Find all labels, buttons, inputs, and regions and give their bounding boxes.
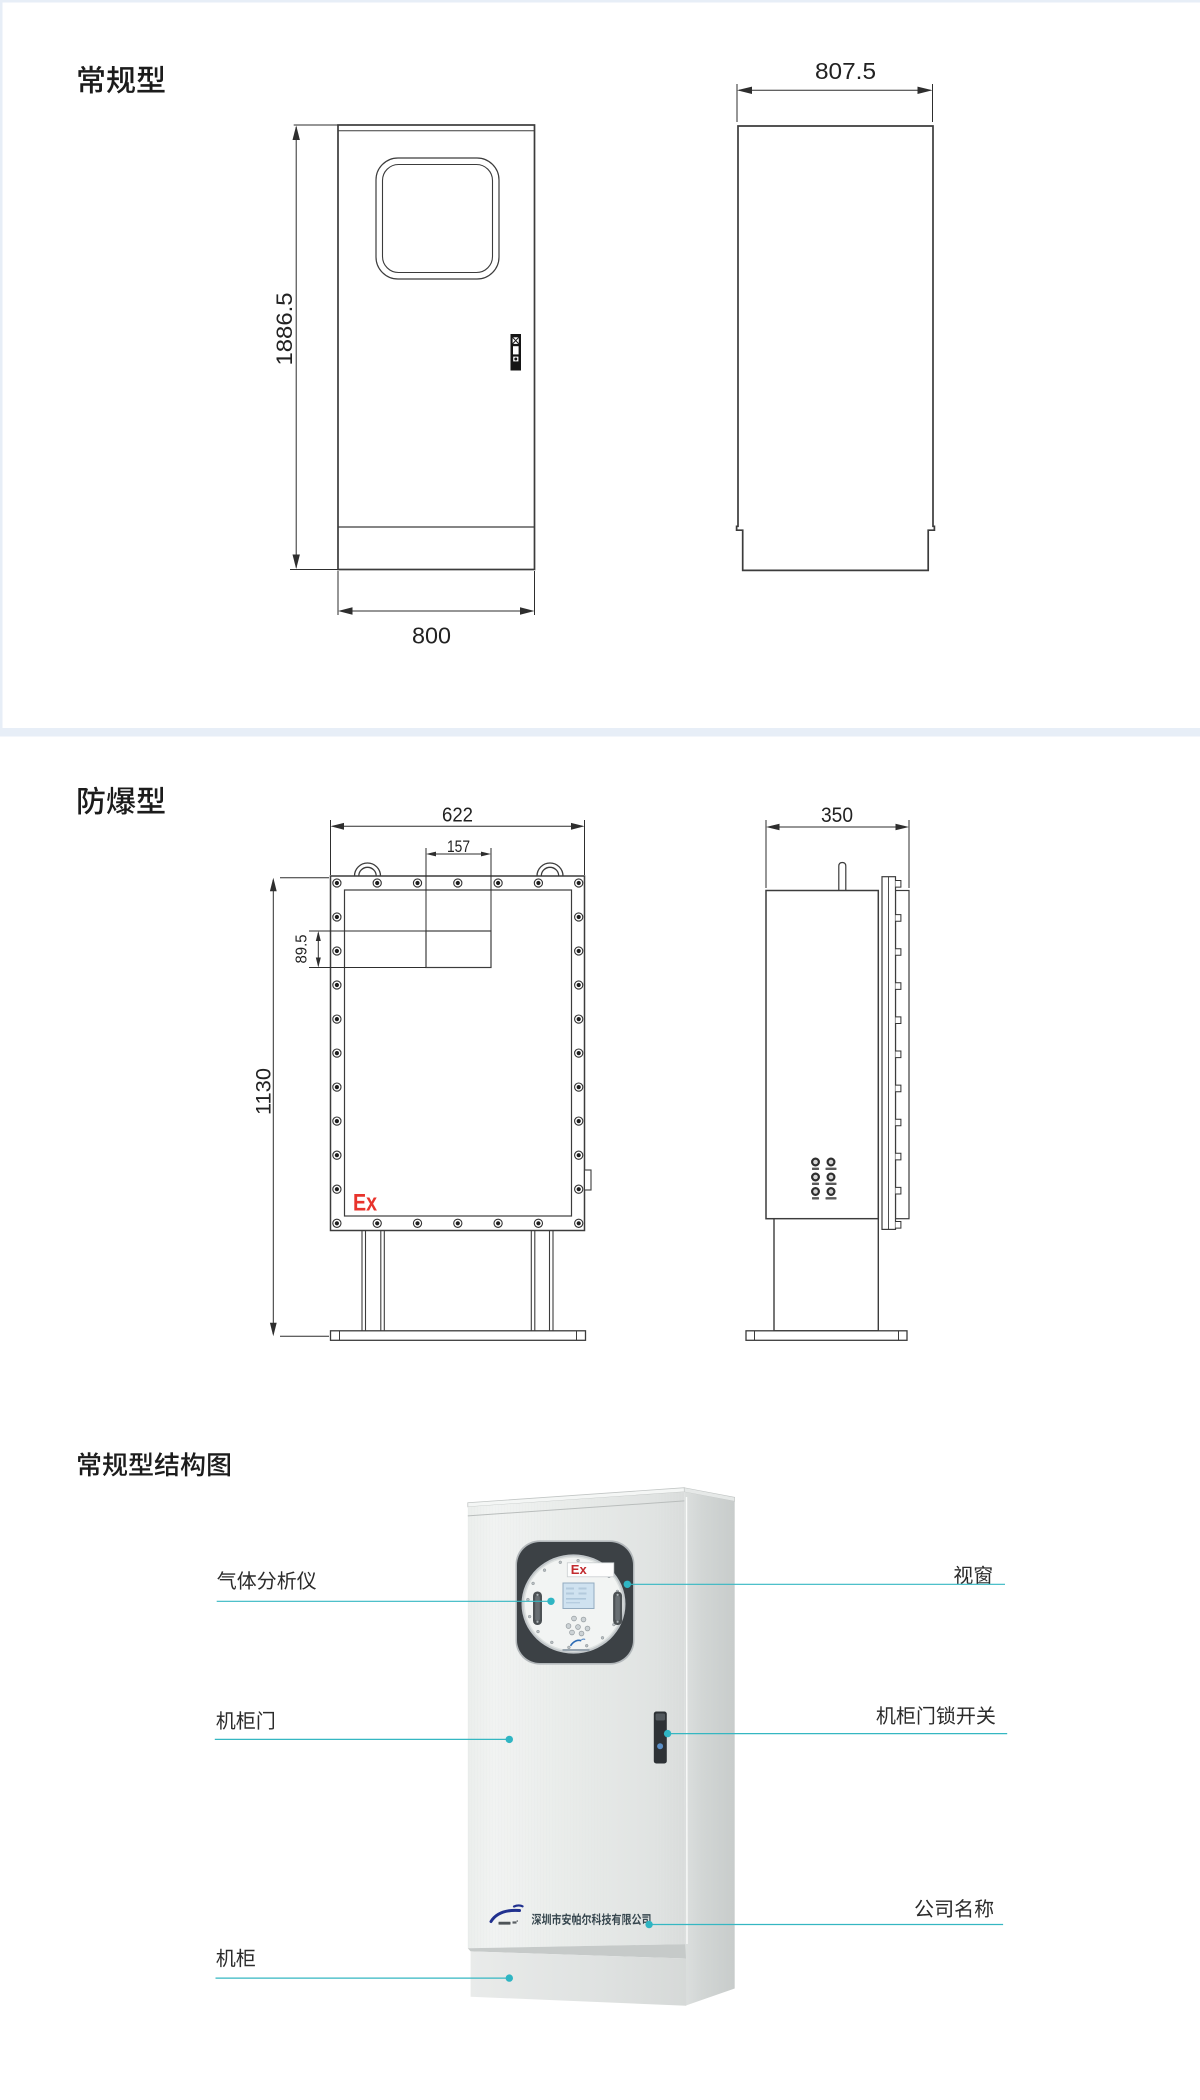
svg-text:622: 622: [442, 804, 473, 827]
svg-text:157: 157: [447, 838, 470, 856]
svg-text:1130: 1130: [253, 1068, 276, 1115]
svg-text:Ex: Ex: [353, 1189, 378, 1216]
svg-text:Ex: Ex: [571, 1562, 588, 1577]
svg-text:800: 800: [412, 623, 451, 649]
svg-text:807.5: 807.5: [815, 58, 876, 84]
svg-text:89.5: 89.5: [294, 935, 311, 964]
svg-text:350: 350: [821, 804, 853, 827]
svg-text:1886.5: 1886.5: [272, 293, 297, 366]
